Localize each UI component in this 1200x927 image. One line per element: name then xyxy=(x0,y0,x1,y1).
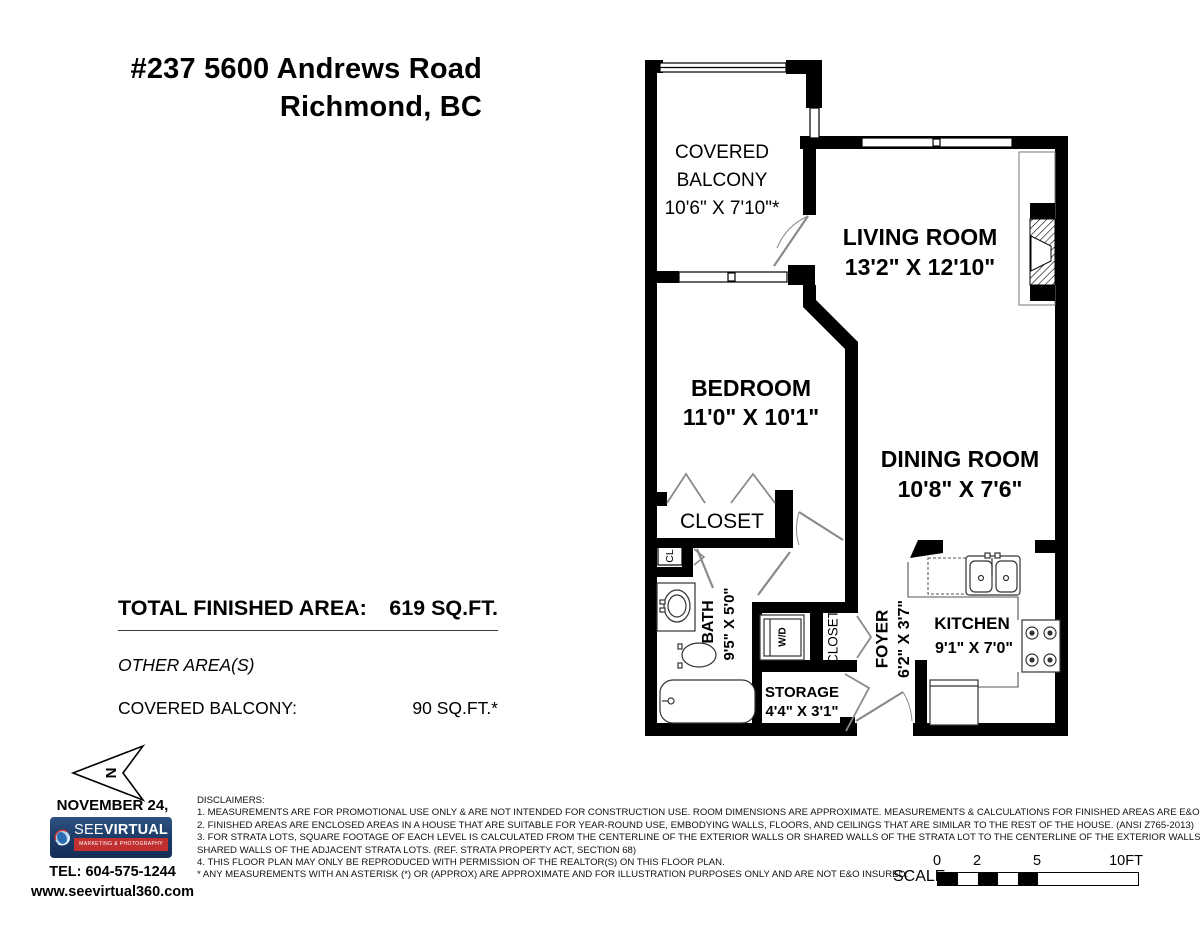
area-summary: TOTAL FINISHED AREA: 619 SQ.FT. OTHER AR… xyxy=(118,596,498,719)
logo-brand-light: SEE xyxy=(74,822,104,838)
address-line1: #237 5600 Andrews Road xyxy=(118,50,482,88)
logo-tagline: MARKETING & PHOTOGRAPHY xyxy=(74,838,168,851)
hall-door xyxy=(758,552,790,595)
total-area-label: TOTAL FINISHED AREA: xyxy=(118,596,367,621)
fixtures xyxy=(657,545,1060,725)
disclaimer-line: 3. FOR STRATA LOTS, SQUARE FOOTAGE OF EA… xyxy=(197,832,1200,844)
bedroom-closet-door-left xyxy=(667,474,705,503)
bath-dims: 9'5" X 5'0" xyxy=(721,587,738,660)
bath-label: BATH xyxy=(700,600,717,643)
scale-tick-0: 0 xyxy=(933,853,941,869)
scale-tick-5: 5 xyxy=(1033,853,1041,869)
kitchen-label: KITCHEN xyxy=(934,614,1010,633)
floor-plan-page: { "header": { "address_line1": "#237 560… xyxy=(0,0,1200,927)
seevirtual-logo: SEEVIRTUAL MARKETING & PHOTOGRAPHY xyxy=(50,817,172,858)
dining-room-dims: 10'8" X 7'6" xyxy=(898,476,1023,502)
divider xyxy=(118,630,498,631)
storage-label: STORAGE xyxy=(765,684,839,701)
hall-closet-label: CLOSET xyxy=(826,610,841,664)
bedroom-label: BEDROOM xyxy=(691,375,811,401)
hall-closet-door xyxy=(857,616,871,658)
bedroom-dims: 11'0" X 10'1" xyxy=(683,404,819,430)
logo-brand-bold: VIRTUAL xyxy=(104,822,168,838)
bedroom-door xyxy=(799,512,843,540)
wd-label: W/D xyxy=(778,627,789,646)
disclaimer-line: 2. FINISHED AREAS ARE ENCLOSED AREAS IN … xyxy=(197,820,1200,832)
cl-label: CL xyxy=(664,549,676,563)
balcony-dims: 10'6" X 7'10"* xyxy=(665,198,780,219)
balcony-label2: BALCONY xyxy=(677,170,768,191)
dining-room-label: DINING ROOM xyxy=(881,446,1039,472)
other-areas-heading: OTHER AREA(S) xyxy=(118,655,498,676)
closet-label: CLOSET xyxy=(680,510,764,533)
toilet xyxy=(678,643,716,668)
stove xyxy=(1022,620,1060,672)
dishwasher xyxy=(928,558,968,594)
scale-tick-10: 10FT xyxy=(1109,853,1143,869)
seevirtual-globe-icon xyxy=(54,823,71,853)
foyer-label: FOYER xyxy=(872,610,891,669)
north-label: N xyxy=(103,768,120,779)
phone-number: TEL: 604-575-1244 xyxy=(40,864,185,880)
bathroom-vanity-sink xyxy=(657,583,695,631)
balcony-area-label: COVERED BALCONY: xyxy=(118,698,297,719)
scale-bar: SCALE 0 2 5 10FT xyxy=(893,855,1143,893)
fridge xyxy=(930,680,978,725)
balcony-railing-side xyxy=(810,108,819,138)
total-area-value: 619 SQ.FT. xyxy=(389,596,498,621)
storage-dims: 4'4" X 3'1" xyxy=(765,703,838,720)
balcony-door xyxy=(774,216,808,266)
scale-tick-2: 2 xyxy=(973,853,981,869)
disclaimer-line: 1. MEASUREMENTS ARE FOR PROMOTIONAL USE … xyxy=(197,807,1200,819)
bedroom-closet-door-right xyxy=(731,474,775,503)
scale-bar-graphic xyxy=(937,872,1139,886)
kitchen-dims: 9'1" X 7'0" xyxy=(935,640,1013,657)
website-url: www.seevirtual360.com xyxy=(30,884,195,900)
floor-plan-drawing: COVERED BALCONY 10'6" X 7'10"* LIVING RO… xyxy=(630,45,1090,745)
disclaimers-heading: DISCLAIMERS: xyxy=(197,795,1200,807)
fireplace xyxy=(1019,152,1055,305)
bath-door xyxy=(697,549,713,588)
address-line2: Richmond, BC xyxy=(118,88,482,126)
living-room-label: LIVING ROOM xyxy=(843,224,998,250)
entry-door xyxy=(856,692,903,721)
north-arrow: N xyxy=(70,742,150,804)
property-address: #237 5600 Andrews Road Richmond, BC xyxy=(118,50,482,126)
living-room-dims: 13'2" X 12'10" xyxy=(845,254,995,280)
kitchen-sink xyxy=(966,553,1020,595)
bathtub xyxy=(660,680,755,723)
balcony-area-value: 90 SQ.FT.* xyxy=(412,698,498,719)
foyer-dims: 6'2" X 3'7" xyxy=(896,600,913,678)
balcony-label: COVERED xyxy=(675,142,769,163)
